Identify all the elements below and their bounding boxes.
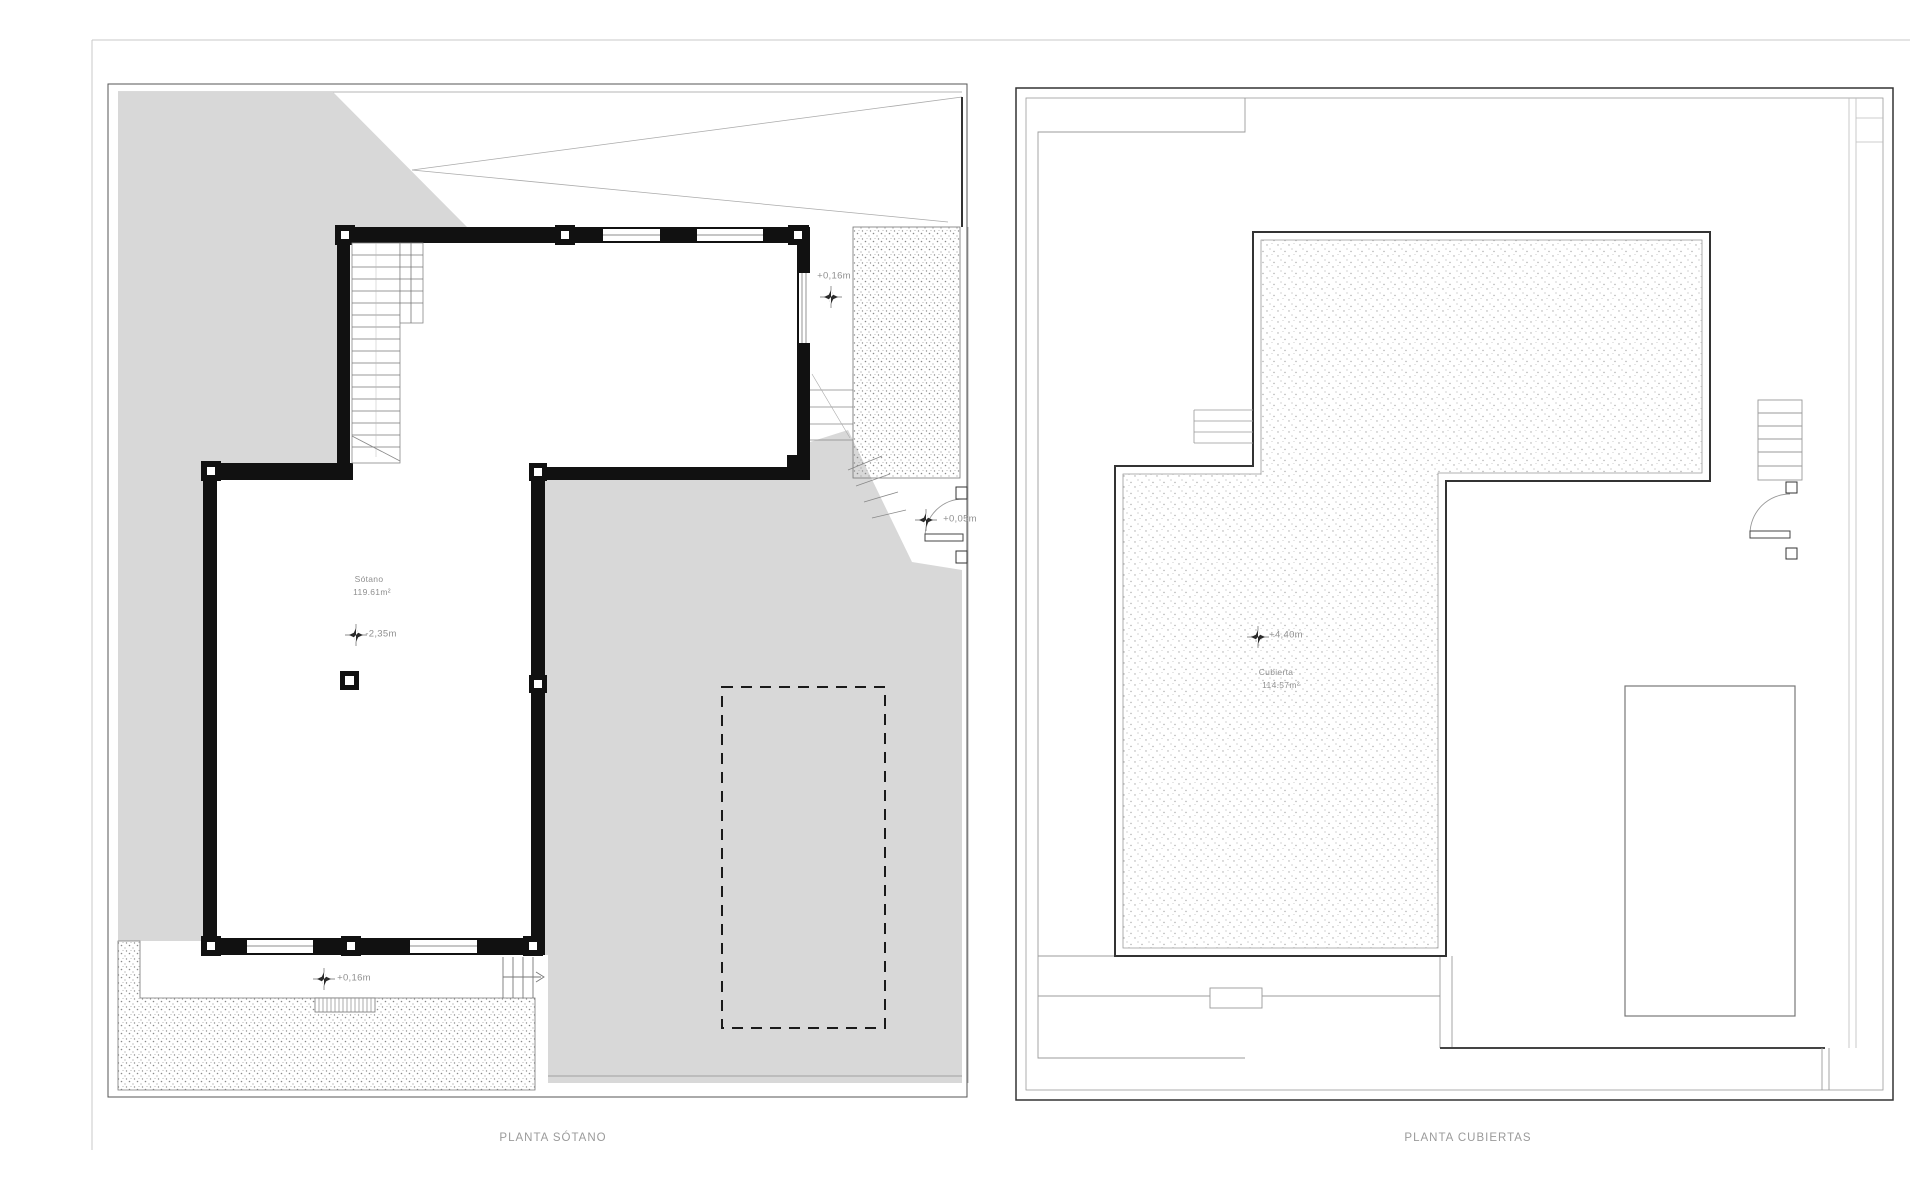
sight-line-lower [412,170,948,222]
level-label-roof: +4,40m [1269,630,1303,641]
level-marker-icon [313,968,335,990]
drawing-sheet: +0,16m -2,35m +0,05m +0,16m Sótano 119.6… [0,0,1920,1181]
plan-title-sotano: PLANTA SÓTANO [499,1132,606,1144]
exterior-staircase [1758,400,1802,480]
room-label-cubierta: Cubierta [1259,667,1294,677]
free-column [340,671,359,690]
level-label-terrace-bottom: +0,16m [337,973,371,984]
level-label-floor: -2,35m [365,629,396,640]
gravel-hatch-top-right [853,227,960,478]
floorplan-canvas [0,0,1920,1181]
room-area-sotano: 119.61m² [353,587,391,597]
level-label-terrace-top: +0,16m [817,271,851,282]
room-label-sotano: Sótano [355,574,384,584]
pool [1625,686,1795,1016]
gravel-hatch-bottom-left [118,941,535,1090]
terrain-gray-right [545,430,962,1083]
level-label-landing: +0,05m [943,514,977,525]
terrain-gray-upper-left [118,92,467,941]
plan-title-cubiertas: PLANTA CUBIERTAS [1404,1132,1531,1144]
interior-staircase [352,243,423,463]
plan-cubiertas-drawing [1016,88,1893,1100]
level-marker-icon [345,624,367,646]
room-area-cubierta: 114.57m² [1262,680,1300,690]
drain-grill [315,998,375,1012]
level-marker-icon [820,286,842,308]
roof-vent [1210,988,1262,1008]
sight-line-upper [412,97,962,170]
terrace-stairs [503,957,544,998]
entry-door [925,487,967,563]
side-steps [810,373,853,440]
